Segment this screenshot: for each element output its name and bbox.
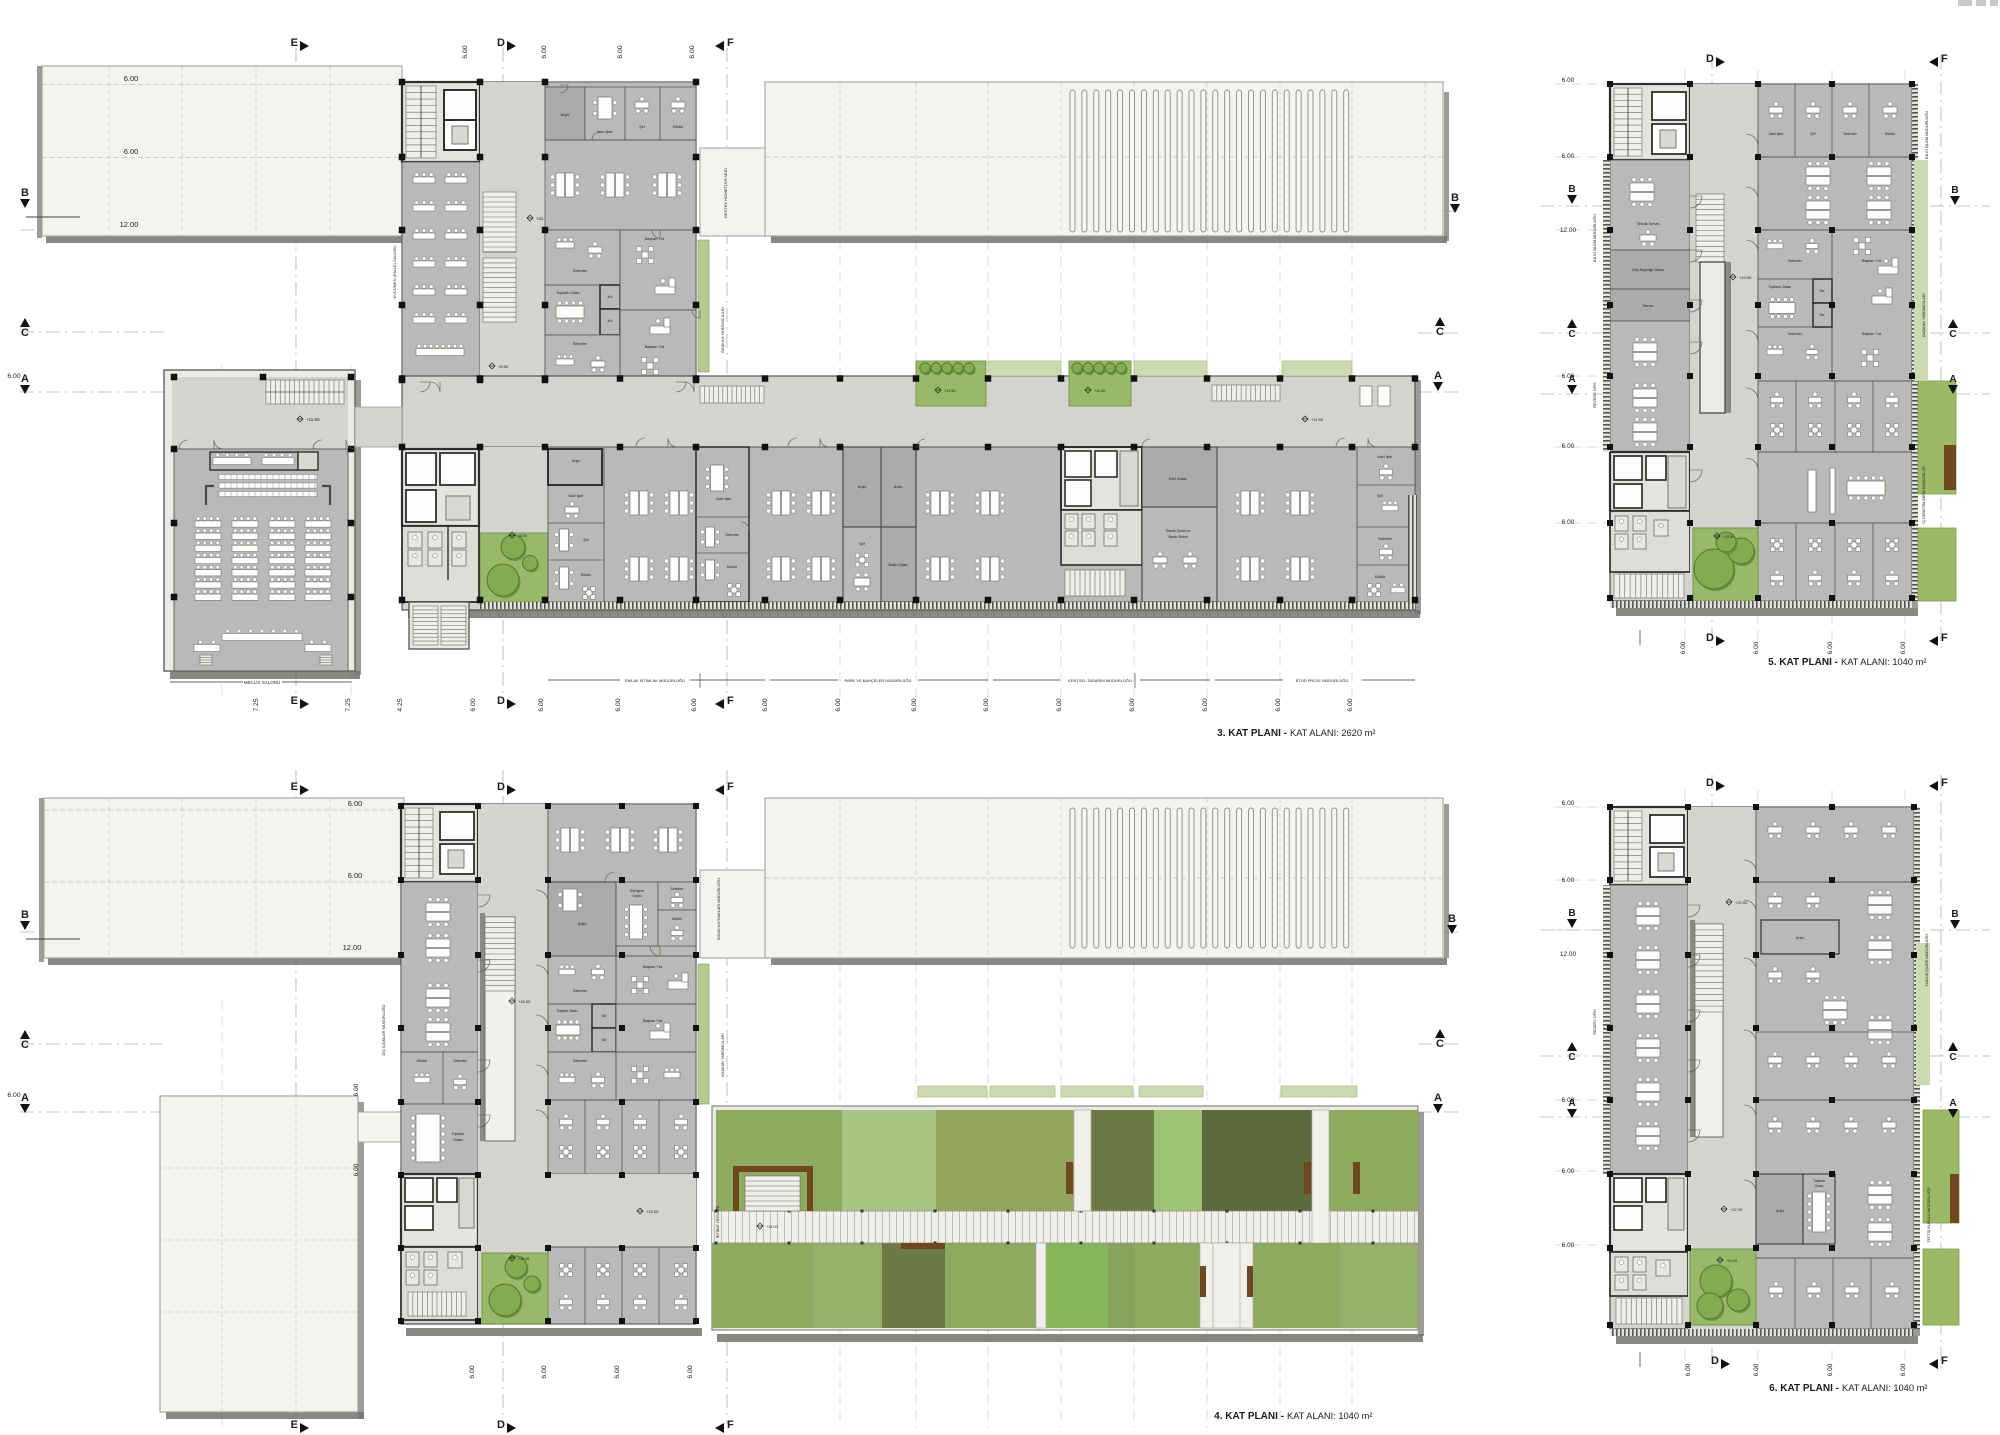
svg-text:F: F (727, 781, 734, 793)
svg-text:D: D (497, 695, 505, 707)
svg-text:Müdür: Müdür (1885, 132, 1896, 136)
svg-text:Müdür: Müdür (727, 565, 738, 569)
svg-text:PARK VE BAHÇELER MÜDÜRLÜĞÜ: PARK VE BAHÇELER MÜDÜRLÜĞÜ (845, 678, 912, 683)
svg-text:Başkan Yrd.: Başkan Yrd. (643, 1019, 663, 1023)
svg-text:BİLGİ İŞLEM MÜDÜRLÜĞÜ: BİLGİ İŞLEM MÜDÜRLÜĞÜ (1924, 111, 1929, 159)
svg-text:6.00: 6.00 (541, 1365, 548, 1378)
svg-text:KENTSEL TASARIM MÜDÜRLÜĞÜ: KENTSEL TASARIM MÜDÜRLÜĞÜ (1068, 678, 1132, 683)
svg-text:6.00: 6.00 (1202, 698, 1209, 711)
svg-text:6.00: 6.00 (1562, 877, 1575, 884)
svg-text:B: B (1568, 184, 1575, 195)
svg-text:Şef: Şef (1810, 132, 1815, 136)
svg-text:Müdür: Müdür (581, 573, 592, 577)
svg-text:Klet Odası: Klet Odası (1169, 477, 1187, 481)
svg-text:6.00: 6.00 (1753, 1363, 1760, 1376)
svg-text:Müdür: Müdür (673, 125, 684, 129)
svg-text:Wc: Wc (1820, 289, 1825, 293)
svg-text:6. KAT PLANI -: 6. KAT PLANI - (1769, 1383, 1839, 1394)
svg-text:İdari İşler: İdari İşler (1769, 131, 1785, 136)
svg-text:Teknik Servis: Teknik Servis (1637, 222, 1659, 226)
svg-text:D: D (497, 37, 505, 49)
svg-text:6.00: 6.00 (1827, 641, 1834, 654)
svg-text:6.00: 6.00 (983, 698, 990, 711)
svg-text:6.00: 6.00 (1129, 698, 1136, 711)
svg-text:BİLGİ İŞLEM MÜDÜRLÜĞÜ: BİLGİ İŞLEM MÜDÜRLÜĞÜ (1592, 214, 1597, 262)
svg-text:Odası: Odası (1815, 1184, 1824, 1188)
svg-text:12.00: 12.00 (120, 220, 139, 229)
svg-text:6.00: 6.00 (353, 1163, 360, 1176)
svg-text:TEFTİŞ KURULU MÜDÜRLÜĞÜ: TEFTİŞ KURULU MÜDÜRLÜĞÜ (1926, 1187, 1931, 1243)
svg-text:Arşiv: Arşiv (1776, 1209, 1785, 1213)
svg-text:BAŞKAN YARDIMCILARI: BAŞKAN YARDIMCILARI (1922, 293, 1926, 336)
svg-text:6.00: 6.00 (541, 45, 548, 58)
svg-text:C: C (1949, 329, 1956, 340)
svg-text:Wc: Wc (1820, 313, 1825, 317)
svg-text:7.25: 7.25 (253, 698, 260, 711)
svg-text:Başkan Yrd.: Başkan Yrd. (645, 237, 666, 241)
svg-text:A: A (1434, 1092, 1442, 1104)
svg-text:A: A (1434, 370, 1442, 382)
svg-text:Arşiv: Arşiv (894, 485, 903, 489)
svg-text:Arşiv: Arşiv (578, 922, 587, 926)
svg-text:A: A (1949, 374, 1956, 385)
svg-text:Sekreter: Sekreter (1843, 132, 1857, 136)
svg-text:6.00: 6.00 (124, 74, 139, 83)
svg-text:B: B (1568, 908, 1575, 919)
svg-text:Wc: Wc (608, 319, 613, 323)
svg-text:Şef: Şef (1377, 494, 1384, 498)
svg-text:Arşiv: Arşiv (572, 459, 580, 463)
svg-text:6.00: 6.00 (1562, 1168, 1575, 1175)
svg-text:REZERV OFİS: REZERV OFİS (1592, 1009, 1597, 1035)
svg-text:6.00: 6.00 (617, 45, 624, 58)
svg-text:İdari İşler: İdari İşler (597, 129, 613, 134)
svg-text:Sekreter: Sekreter (1378, 537, 1393, 541)
svg-text:İÇ DENETİM BİRİM BAŞKANLIĞI: İÇ DENETİM BİRİM BAŞKANLIĞI (1921, 466, 1926, 523)
svg-text:+19.50: +19.50 (1723, 535, 1734, 539)
svg-text:6.00: 6.00 (687, 1365, 694, 1378)
svg-text:İdari İşler: İdari İşler (716, 496, 732, 501)
svg-text:6.00: 6.00 (1562, 443, 1575, 450)
svg-text:6.00: 6.00 (470, 698, 477, 711)
svg-text:Odası: Odası (453, 1138, 463, 1142)
svg-text:Şef: Şef (639, 125, 646, 129)
svg-text:D: D (1706, 53, 1714, 65)
svg-text:Wc: Wc (602, 1014, 607, 1018)
svg-text:A: A (1568, 374, 1575, 385)
svg-text:4. KAT PLANI -: 4. KAT PLANI - (1214, 1411, 1284, 1422)
svg-text:12.00: 12.00 (343, 943, 362, 952)
svg-text:6.00: 6.00 (1900, 1363, 1907, 1376)
svg-text:C: C (1949, 1052, 1956, 1063)
svg-text:Sekreter: Sekreter (671, 887, 685, 891)
svg-text:6.00: 6.00 (1680, 641, 1687, 654)
svg-text:6.00: 6.00 (353, 1083, 360, 1096)
svg-text:D: D (497, 1419, 505, 1431)
svg-text:6.00: 6.00 (1562, 800, 1575, 807)
svg-text:6.00: 6.00 (462, 45, 469, 58)
svg-text:+15.00: +15.00 (766, 1225, 778, 1229)
svg-text:6.00: 6.00 (1275, 698, 1282, 711)
svg-text:6.00: 6.00 (1347, 698, 1354, 711)
svg-text:B: B (1951, 909, 1958, 920)
svg-text:7.25: 7.25 (345, 698, 352, 711)
svg-text:F: F (1941, 53, 1948, 65)
svg-text:12.00: 12.00 (1560, 951, 1577, 958)
svg-text:C: C (1436, 326, 1444, 338)
svg-text:6.00: 6.00 (615, 698, 622, 711)
svg-text:F: F (727, 37, 734, 49)
svg-text:DESTEK HİZMETLER MÜD.: DESTEK HİZMETLER MÜD. (723, 167, 728, 218)
svg-text:A: A (1949, 1098, 1956, 1109)
svg-text:+8.50: +8.50 (498, 364, 509, 369)
svg-text:Toplantı Odası: Toplantı Odası (1769, 285, 1792, 289)
svg-text:6.00: 6.00 (1900, 641, 1907, 654)
svg-text:Şef: Şef (859, 542, 866, 546)
svg-text:+11.50: +11.50 (1311, 417, 1324, 422)
svg-text:+22.00: +22.00 (1735, 900, 1748, 905)
svg-text:F: F (1941, 777, 1948, 789)
svg-text:6.00: 6.00 (614, 1365, 621, 1378)
svg-text:Görüşme: Görüşme (630, 889, 644, 893)
svg-text:Server: Server (1642, 304, 1654, 308)
svg-text:6.00: 6.00 (7, 1092, 20, 1099)
svg-text:F: F (1941, 1355, 1948, 1367)
svg-text:3. KAT PLANI -: 3. KAT PLANI - (1217, 728, 1287, 739)
svg-text:Başkan Yrd.: Başkan Yrd. (643, 965, 663, 969)
svg-text:6.00: 6.00 (1685, 1363, 1692, 1376)
svg-text:6.00: 6.00 (348, 799, 363, 808)
svg-text:6.00: 6.00 (538, 698, 545, 711)
svg-text:+11.50: +11.50 (1094, 389, 1105, 393)
svg-text:B: B (1448, 913, 1456, 925)
svg-text:B: B (1951, 185, 1958, 196)
svg-text:Müdür: Müdür (672, 917, 683, 921)
svg-text:Sekreter: Sekreter (453, 1059, 467, 1063)
svg-text:İdari İşler: İdari İşler (1377, 454, 1393, 459)
svg-text:BAŞKAN YARDIMCILARI: BAŞKAN YARDIMCILARI (721, 1033, 725, 1076)
svg-text:Başkan Yrd.: Başkan Yrd. (1862, 259, 1882, 263)
svg-text:Sekreter: Sekreter (573, 1059, 588, 1063)
svg-text:DIŞ İLİŞKİLER MÜDÜRLÜĞÜ: DIŞ İLİŞKİLER MÜDÜRLÜĞÜ (381, 1004, 386, 1055)
svg-text:B: B (1451, 192, 1459, 204)
svg-text:+22.00: +22.00 (1726, 1259, 1737, 1263)
svg-text:F: F (727, 695, 734, 707)
svg-text:D: D (1706, 777, 1714, 789)
svg-text:C: C (1568, 1052, 1575, 1063)
svg-text:EVCÜMEN (İHALE) SALONU: EVCÜMEN (İHALE) SALONU (392, 245, 397, 298)
svg-text:+15.00: +15.00 (518, 999, 531, 1004)
svg-text:+11.50: +11.50 (944, 389, 955, 393)
svg-text:Müdür: Müdür (417, 1059, 428, 1063)
svg-text:6.00: 6.00 (1827, 1363, 1834, 1376)
svg-text:Güç Kaynağı Odası: Güç Kaynağı Odası (1632, 268, 1664, 272)
svg-text:F: F (727, 1419, 734, 1431)
svg-text:+8.50: +8.50 (518, 534, 527, 538)
svg-text:İNSAN KAYNAKLARI MÜDÜRLÜĞÜ: İNSAN KAYNAKLARI MÜDÜRLÜĞÜ (716, 878, 721, 940)
svg-text:C: C (21, 327, 29, 339)
svg-text:6.00: 6.00 (124, 147, 139, 156)
svg-text:D: D (497, 781, 505, 793)
svg-text:A: A (21, 373, 29, 385)
svg-text:6.00: 6.00 (1562, 77, 1575, 84)
svg-text:Odası: Odası (632, 894, 641, 898)
svg-text:Sekreter: Sekreter (573, 989, 588, 993)
svg-text:EMLAK İSTİMLAK MÜDÜRLÜĞÜ: EMLAK İSTİMLAK MÜDÜRLÜĞÜ (625, 678, 685, 683)
svg-text:Arşiv: Arşiv (858, 485, 867, 489)
svg-text:A: A (1568, 1098, 1575, 1109)
svg-text:Toplantı: Toplantı (1813, 1179, 1825, 1183)
svg-text:Sekreter: Sekreter (573, 269, 588, 273)
svg-text:Toplantı Odası: Toplantı Odası (556, 1009, 577, 1013)
svg-text:E: E (291, 695, 298, 707)
svg-text:Teknik Çizim ve: Teknik Çizim ve (1166, 529, 1191, 533)
svg-text:6.00: 6.00 (1562, 519, 1575, 526)
svg-text:6.00: 6.00 (348, 871, 363, 880)
svg-text:ETÜD PROJE MÜDÜRLÜĞÜ: ETÜD PROJE MÜDÜRLÜĞÜ (1296, 678, 1349, 683)
svg-text:E: E (291, 1419, 298, 1431)
svg-text:B: B (21, 187, 29, 199)
svg-text:Wc: Wc (602, 1038, 607, 1042)
svg-text:6.00: 6.00 (762, 698, 769, 711)
svg-text:Sekreter: Sekreter (573, 342, 588, 346)
svg-text:KAT ALANI: 1040 m²: KAT ALANI: 1040 m² (1842, 1383, 1927, 1393)
svg-text:Baskı Birimi: Baskı Birimi (1169, 535, 1188, 539)
svg-text:Sekreter: Sekreter (1788, 259, 1803, 263)
svg-text:6.00: 6.00 (1562, 153, 1575, 160)
svg-text:D: D (1706, 632, 1714, 644)
svg-text:12.00: 12.00 (1560, 227, 1577, 234)
svg-text:Başkan Yrd.: Başkan Yrd. (1862, 332, 1882, 336)
svg-text:Wc: Wc (608, 295, 613, 299)
svg-text:+19.50: +19.50 (1739, 275, 1752, 280)
svg-text:HUKUK İŞLERİ MÜDÜRLÜĞÜ: HUKUK İŞLERİ MÜDÜRLÜĞÜ (1924, 934, 1929, 986)
svg-text:KAT ALANI: 2620 m²: KAT ALANI: 2620 m² (1290, 728, 1375, 738)
svg-text:B: B (21, 909, 29, 921)
svg-text:6.00: 6.00 (7, 373, 20, 380)
svg-text:E: E (291, 37, 298, 49)
svg-text:Baskı Odası: Baskı Odası (888, 563, 907, 567)
svg-text:İdari İşler: İdari İşler (568, 493, 584, 498)
svg-text:6.00: 6.00 (835, 698, 842, 711)
svg-text:İRTİBAT OFİSLERİ: İRTİBAT OFİSLERİ (715, 1206, 720, 1239)
svg-text:6.00: 6.00 (1056, 698, 1063, 711)
svg-text:Müdür: Müdür (1375, 575, 1386, 579)
svg-text:Toplantı: Toplantı (452, 1132, 465, 1136)
svg-text:6.00: 6.00 (1753, 641, 1760, 654)
svg-text:C: C (1568, 329, 1575, 340)
svg-text:E: E (291, 781, 298, 793)
svg-text:MECLİS SALONU: MECLİS SALONU (244, 679, 281, 685)
svg-text:C: C (1436, 1038, 1444, 1050)
svg-text:+15.00: +15.00 (646, 1209, 659, 1214)
svg-text:Arşiv: Arşiv (1796, 936, 1805, 940)
svg-text:+15.00: +15.00 (518, 1257, 529, 1261)
svg-text:KAT ALANI: 1040 m²: KAT ALANI: 1040 m² (1841, 657, 1926, 667)
svg-text:F: F (1941, 632, 1948, 644)
svg-text:BAŞKAN YARDIMCILARI: BAŞKAN YARDIMCILARI (720, 307, 725, 352)
svg-text:5. KAT PLANI -: 5. KAT PLANI - (1768, 657, 1838, 668)
svg-text:6.00: 6.00 (911, 698, 918, 711)
svg-text:6.00: 6.00 (469, 1365, 476, 1378)
svg-text:6.00: 6.00 (691, 698, 698, 711)
svg-text:6.00: 6.00 (689, 45, 696, 58)
svg-text:C: C (21, 1039, 29, 1051)
svg-text:+11.50: +11.50 (306, 417, 320, 422)
svg-text:Sekreter: Sekreter (725, 533, 739, 537)
svg-text:D: D (1711, 1355, 1719, 1367)
svg-text:Arşiv: Arşiv (561, 112, 570, 117)
svg-text:A: A (21, 1092, 29, 1104)
svg-text:+22.00: +22.00 (1730, 1207, 1743, 1212)
svg-text:4.25: 4.25 (397, 698, 404, 711)
svg-text:REZERV OFİS: REZERV OFİS (1592, 382, 1597, 408)
svg-text:6.00: 6.00 (1562, 1242, 1575, 1249)
svg-text:KAT ALANI: 1040 m²: KAT ALANI: 1040 m² (1287, 1411, 1372, 1421)
svg-text:Şef: Şef (583, 538, 590, 542)
svg-text:Sekreter: Sekreter (1788, 332, 1803, 336)
svg-text:Toplantı Odası: Toplantı Odası (556, 291, 579, 295)
svg-text:Başkan Yrd.: Başkan Yrd. (645, 345, 666, 349)
